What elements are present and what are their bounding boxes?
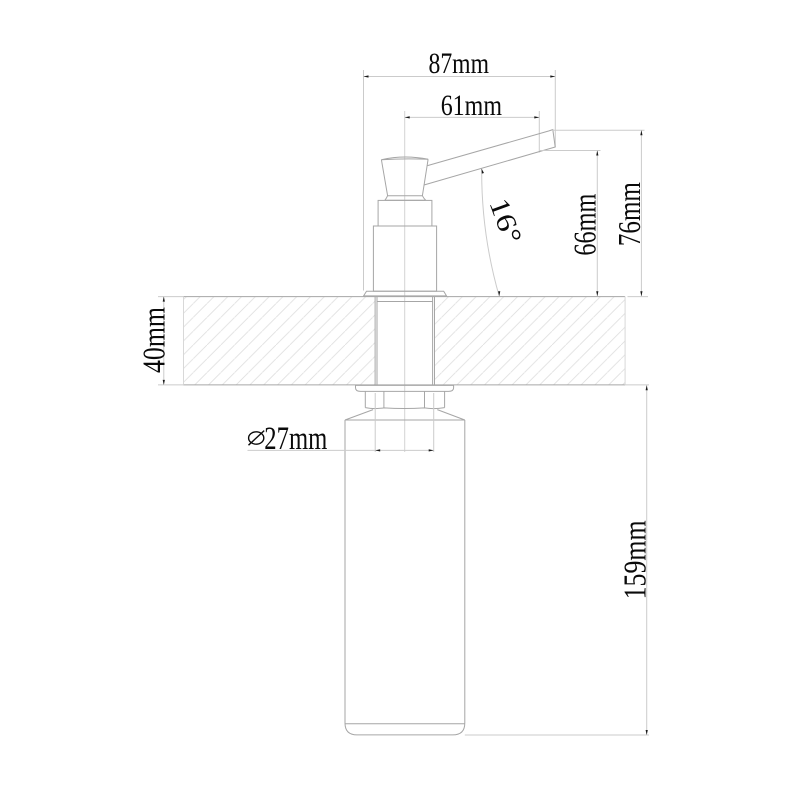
svg-text:40mm: 40mm xyxy=(136,307,172,373)
svg-text:159mm: 159mm xyxy=(616,520,652,599)
svg-text:61mm: 61mm xyxy=(441,89,502,122)
svg-text:76mm: 76mm xyxy=(611,182,647,246)
svg-text:66mm: 66mm xyxy=(567,194,603,256)
svg-text:27mm: 27mm xyxy=(264,421,327,457)
svg-text:87mm: 87mm xyxy=(429,47,490,80)
